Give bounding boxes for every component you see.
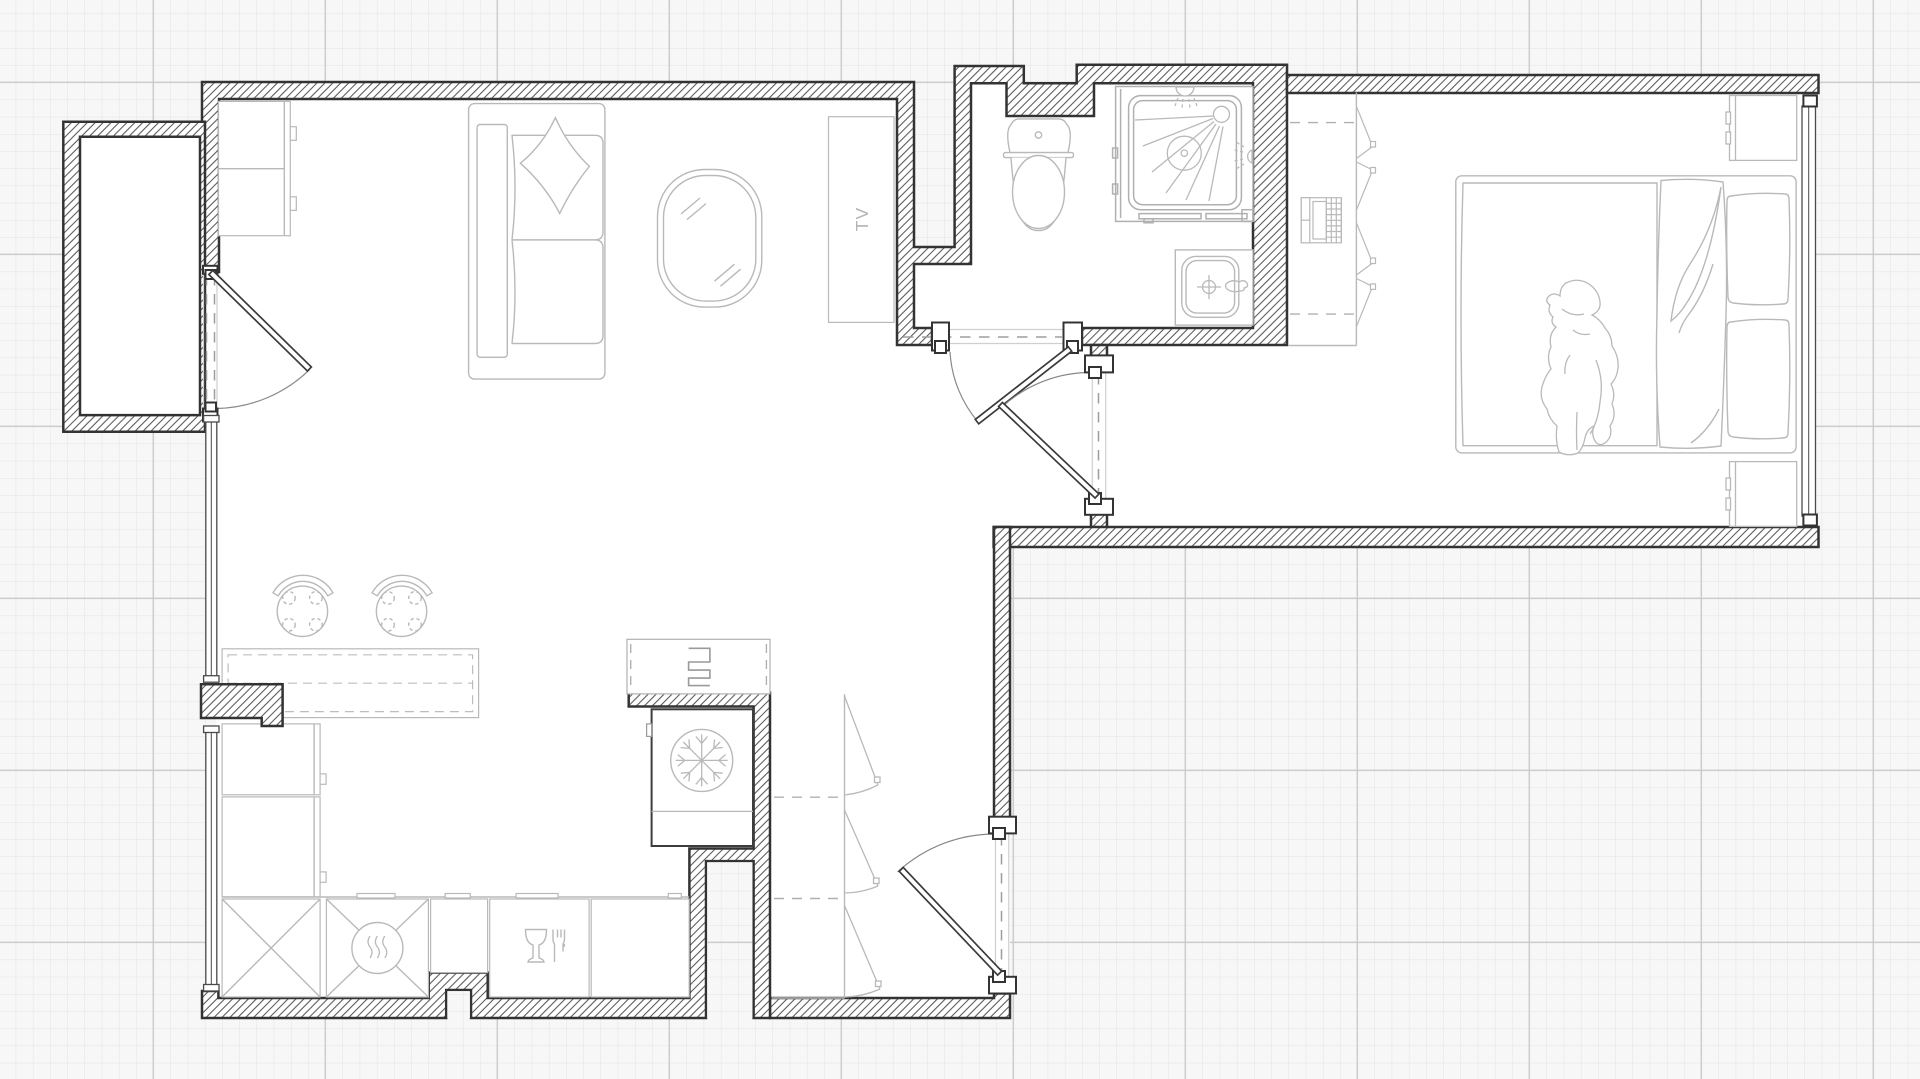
svg-text:TV: TV (852, 207, 872, 231)
